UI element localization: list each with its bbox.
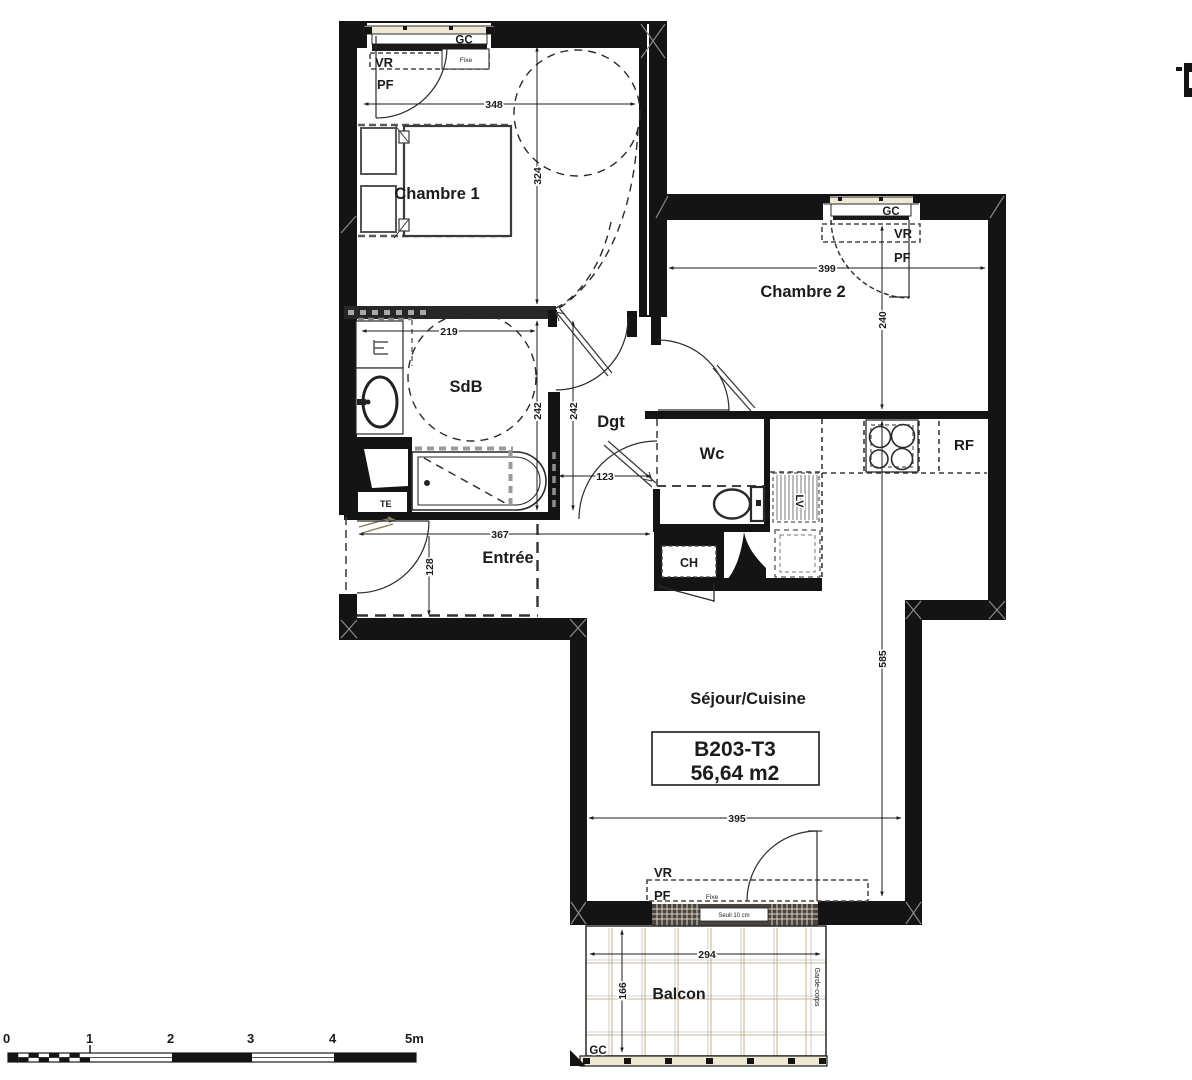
svg-text:GC: GC [455, 35, 472, 47]
svg-text:B203-T3: B203-T3 [694, 738, 776, 761]
svg-text:GC: GC [882, 206, 899, 218]
svg-text:Chambre 2: Chambre 2 [760, 283, 845, 301]
svg-text:294: 294 [698, 949, 716, 961]
svg-text:VR: VR [654, 865, 673, 880]
svg-text:166: 166 [617, 982, 629, 1000]
svg-text:324: 324 [532, 167, 544, 185]
svg-text:Séjour/Cuisine: Séjour/Cuisine [690, 690, 806, 708]
svg-text:Balcon: Balcon [652, 986, 705, 1003]
svg-text:1: 1 [86, 1031, 93, 1046]
svg-text:PF: PF [377, 77, 394, 92]
svg-text:SdB: SdB [450, 378, 483, 396]
svg-text:VR: VR [375, 55, 394, 70]
svg-text:LV: LV [793, 494, 805, 508]
svg-text:Chambre 1: Chambre 1 [394, 185, 479, 203]
svg-text:123: 123 [596, 471, 614, 483]
svg-text:399: 399 [818, 263, 836, 275]
svg-text:GC: GC [589, 1045, 606, 1057]
svg-text:Dgt: Dgt [597, 413, 625, 431]
svg-text:219: 219 [440, 326, 458, 338]
svg-text:VR: VR [894, 226, 913, 241]
svg-text:Wc: Wc [700, 445, 725, 463]
svg-text:PF: PF [654, 888, 671, 903]
svg-text:242: 242 [532, 402, 544, 420]
svg-text:RF: RF [954, 437, 974, 454]
svg-text:242: 242 [568, 402, 580, 420]
svg-text:CH: CH [680, 556, 698, 570]
svg-text:128: 128 [424, 558, 436, 576]
svg-text:240: 240 [877, 311, 889, 329]
svg-text:Fixe: Fixe [460, 57, 473, 64]
svg-text:2: 2 [167, 1031, 174, 1046]
svg-text:585: 585 [877, 650, 889, 668]
svg-text:TE: TE [380, 499, 392, 509]
svg-text:Fixe: Fixe [706, 894, 719, 901]
svg-text:0: 0 [3, 1031, 10, 1046]
svg-text:395: 395 [728, 813, 746, 825]
svg-text:5m: 5m [405, 1031, 424, 1046]
svg-text:56,64 m2: 56,64 m2 [691, 762, 780, 785]
svg-text:PF: PF [894, 250, 911, 265]
svg-text:Seuil 10 cm: Seuil 10 cm [718, 913, 749, 919]
svg-text:367: 367 [491, 529, 509, 541]
svg-text:348: 348 [485, 99, 503, 111]
svg-text:Garde-corps: Garde-corps [813, 968, 820, 1007]
svg-text:4: 4 [329, 1031, 337, 1046]
svg-text:Entrée: Entrée [482, 549, 533, 567]
svg-text:3: 3 [247, 1031, 254, 1046]
